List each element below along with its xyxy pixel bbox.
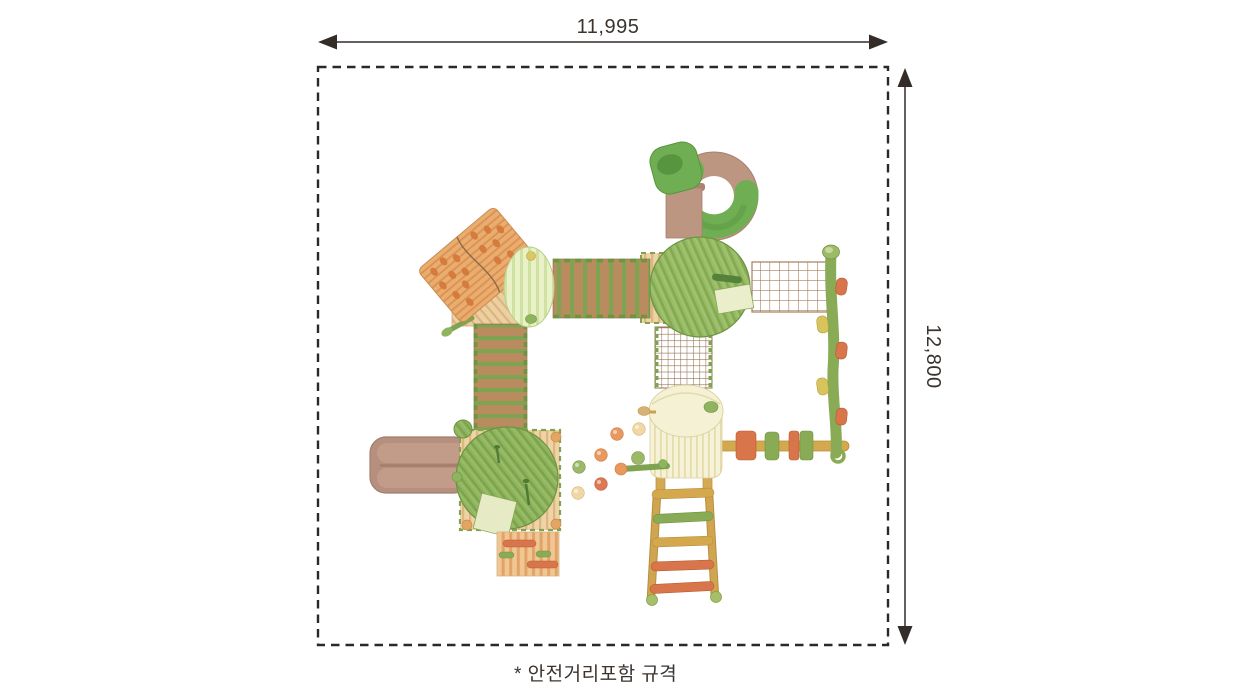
- rope-ladder: [647, 488, 722, 606]
- height-dimension: 12,800: [898, 68, 945, 645]
- ladder-rung: [650, 581, 714, 593]
- climbing-ramp-with-grips: [497, 532, 559, 576]
- beam-grip: [765, 432, 779, 460]
- ramp-grip: [536, 551, 551, 557]
- arrow-left-icon: [318, 35, 337, 50]
- ladder-foot: [711, 592, 722, 603]
- spec-sheet: 11,995 12,800: [0, 0, 1256, 700]
- ramp-grip: [527, 561, 558, 568]
- arrow-up-icon: [898, 68, 913, 87]
- round-hut-platform: [638, 385, 723, 496]
- ramp-grip: [503, 540, 536, 547]
- platform-knob: [527, 252, 536, 261]
- safety-boundary: [318, 67, 888, 645]
- ladder-rung: [652, 488, 714, 499]
- hut-knob: [704, 402, 718, 413]
- tube-section: [666, 188, 702, 238]
- ladder-rung: [653, 511, 713, 523]
- hut-knob: [638, 407, 650, 416]
- deck-knob: [452, 472, 462, 482]
- double-slide: [370, 437, 470, 493]
- spec-diagram-canvas: 11,995 12,800: [0, 0, 1256, 700]
- plank-bridge-horizontal: [553, 259, 650, 318]
- height-dimension-label: 12,800: [922, 324, 944, 388]
- ladder-foot: [647, 595, 658, 606]
- beam-grip: [800, 431, 813, 460]
- width-dimension: 11,995: [318, 16, 888, 50]
- ramp-grip: [499, 552, 514, 558]
- pole-step: [835, 277, 848, 295]
- ladder-rung: [651, 560, 714, 571]
- playground-structure: [370, 139, 849, 606]
- leaf-canopy-top: [650, 237, 754, 337]
- pole-step: [816, 377, 829, 395]
- beam-grip: [789, 431, 799, 460]
- overhead-beam-with-grips: [718, 431, 849, 460]
- plank-bridge-vertical: [474, 324, 527, 432]
- pole-step: [835, 342, 848, 360]
- arrow-down-icon: [898, 626, 913, 645]
- rope-net-horizontal: [752, 262, 828, 312]
- beam-grip: [736, 431, 756, 460]
- pole-step: [835, 408, 848, 426]
- platform-knob: [526, 315, 537, 324]
- pole-step: [816, 315, 829, 333]
- width-dimension-label: 11,995: [577, 16, 640, 38]
- ladder-rung: [652, 536, 713, 547]
- arrow-right-icon: [869, 35, 888, 50]
- spiral-tube-slide: [647, 139, 758, 240]
- bush: [454, 420, 472, 438]
- caption: * 안전거리포함 규격: [514, 663, 677, 685]
- round-platform-small: [504, 247, 554, 327]
